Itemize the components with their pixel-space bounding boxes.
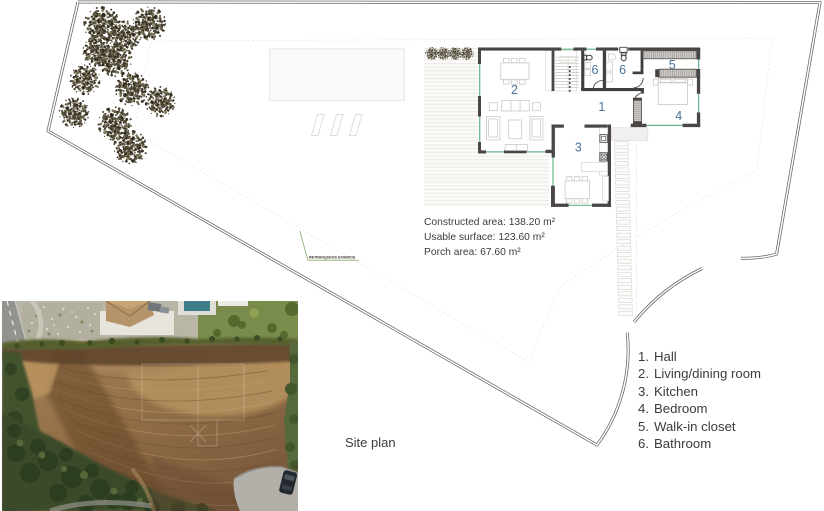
svg-text:5: 5 — [669, 58, 676, 72]
svg-text:1: 1 — [598, 100, 605, 114]
svg-text:2: 2 — [511, 83, 518, 97]
svg-text:6: 6 — [592, 63, 599, 77]
svg-text:RETRANQUEOS EXIGIDOS: RETRANQUEOS EXIGIDOS — [309, 256, 356, 260]
svg-text:4: 4 — [675, 109, 682, 123]
svg-text:6: 6 — [619, 63, 626, 77]
svg-text:3: 3 — [575, 141, 582, 155]
